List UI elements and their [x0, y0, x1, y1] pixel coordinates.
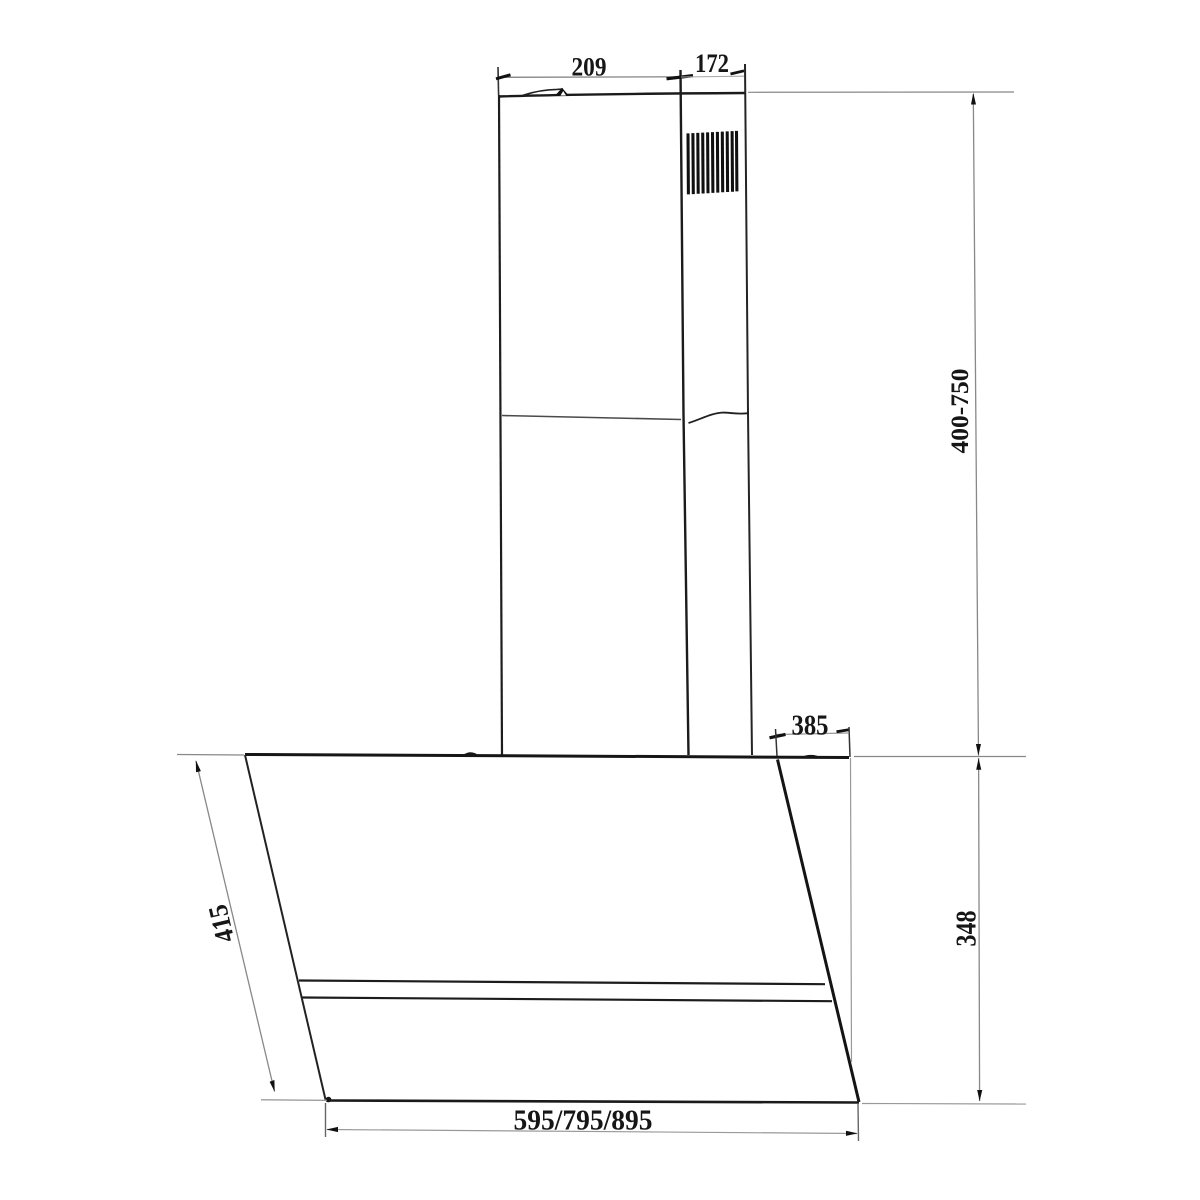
svg-text:595/795/895: 595/795/895: [514, 1105, 653, 1137]
svg-text:400-750: 400-750: [947, 369, 974, 454]
svg-text:209: 209: [572, 53, 607, 82]
svg-text:385: 385: [792, 710, 829, 742]
svg-text:172: 172: [695, 49, 729, 78]
svg-text:348: 348: [952, 911, 983, 947]
